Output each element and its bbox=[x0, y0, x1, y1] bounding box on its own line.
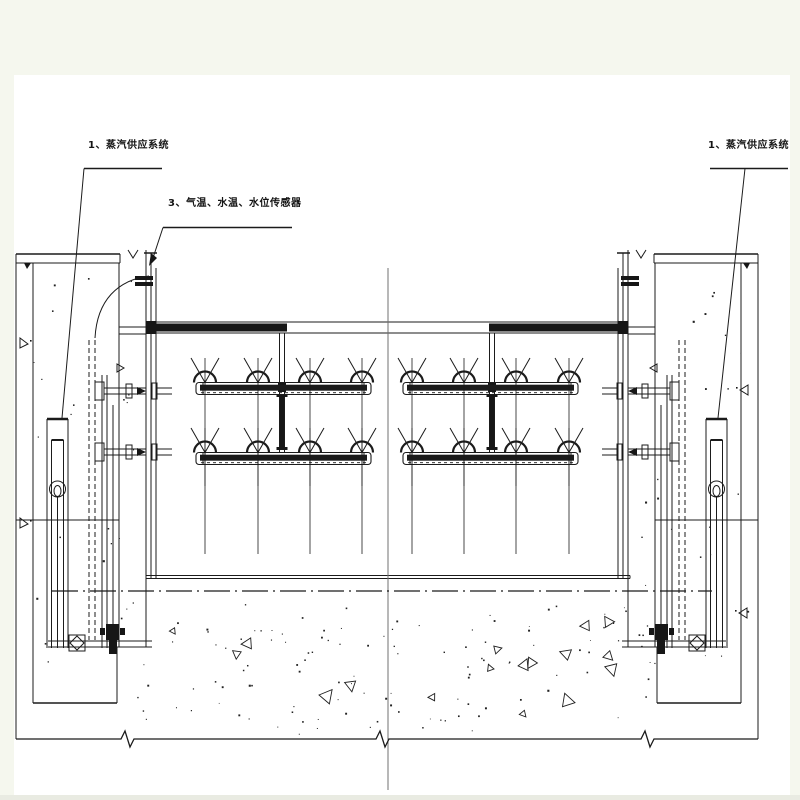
engineering-drawing bbox=[0, 0, 800, 800]
label-air-water-temp-level-sensors: 3、气温、水温、水位传感器 bbox=[168, 198, 301, 210]
label-steam-supply-system-left: 1、蒸汽供应系统 bbox=[88, 140, 169, 152]
cad-sheet: 1、蒸汽供应系统 3、气温、水温、水位传感器 1、蒸汽供应系统 bbox=[0, 0, 800, 800]
label-steam-supply-system-right: 1、蒸汽供应系统 bbox=[708, 140, 789, 152]
